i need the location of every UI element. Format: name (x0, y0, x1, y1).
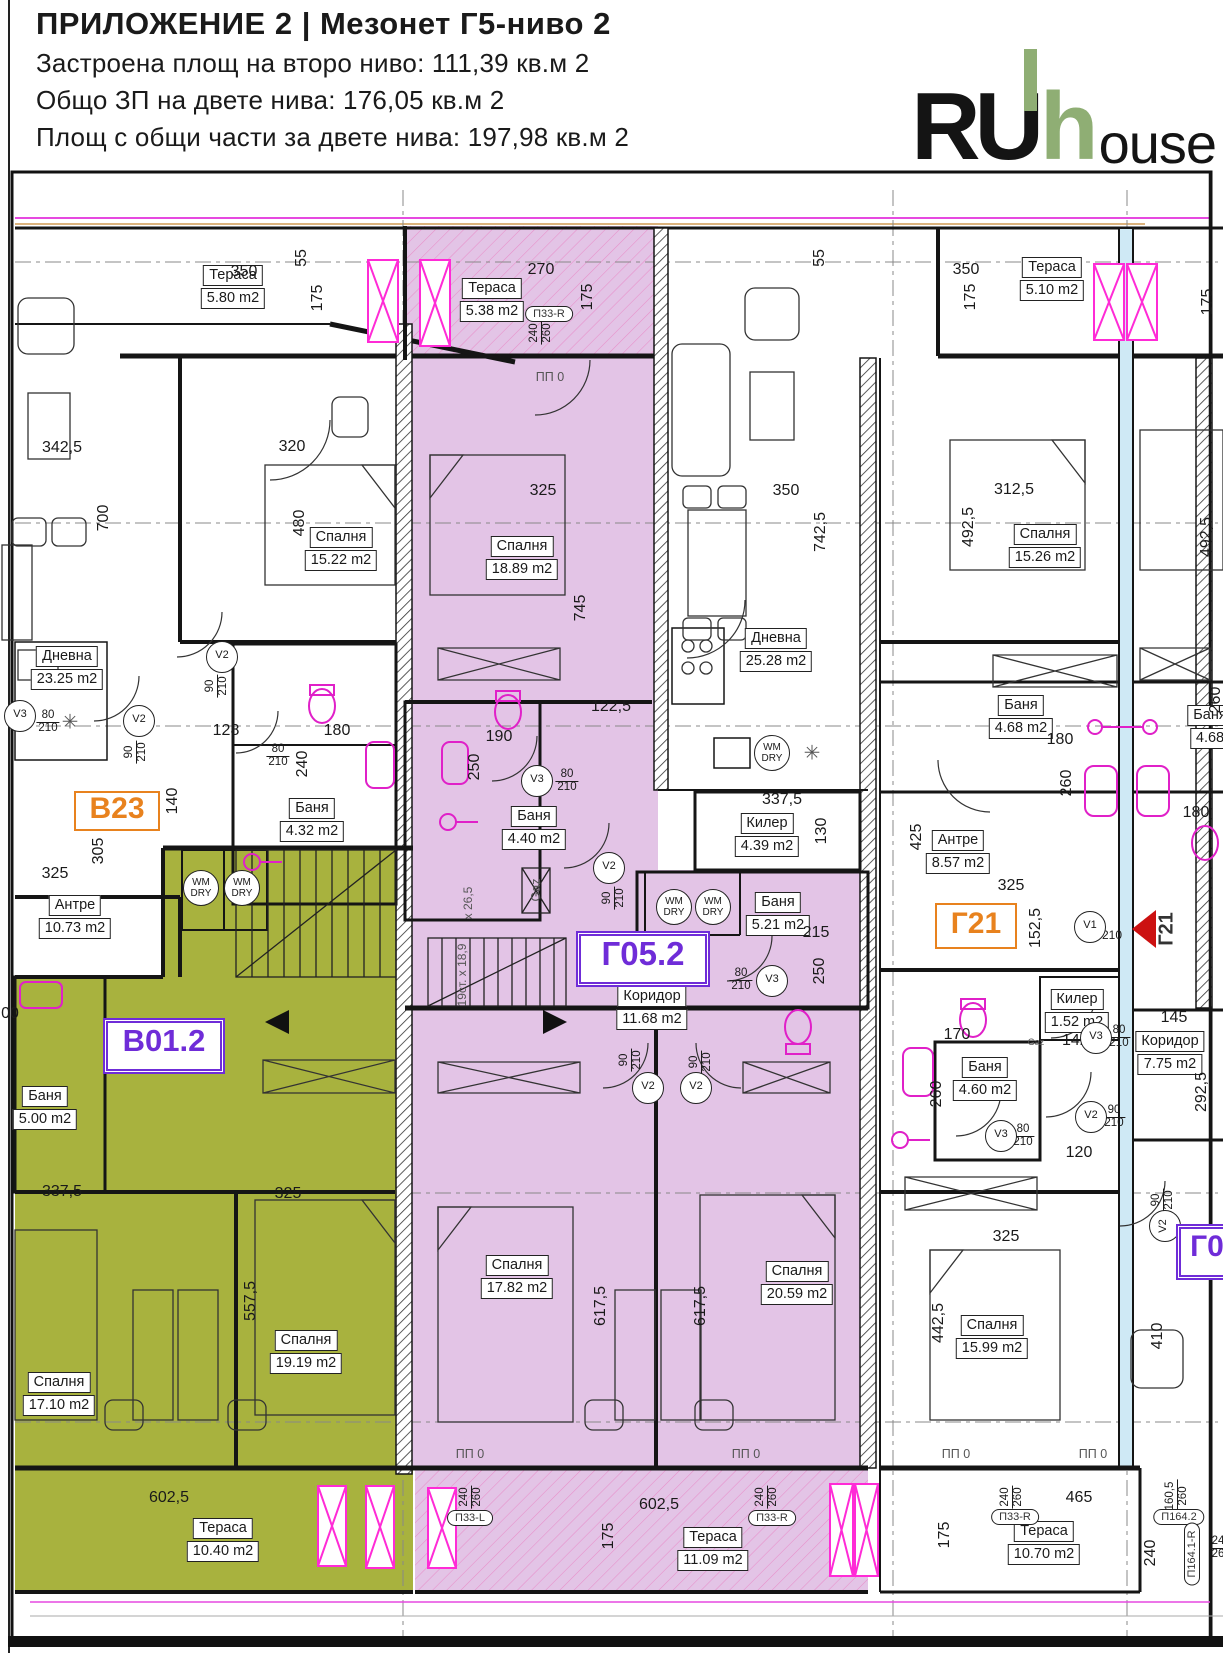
room-name: Тераса (1022, 257, 1082, 278)
note-text: ПП 0 (536, 370, 564, 384)
dimension-text: 240 (294, 751, 312, 778)
vent-circle: V1 (1074, 911, 1106, 943)
dimension-text: 320 (279, 438, 306, 456)
window-id-oval: П164.1-R (1184, 1522, 1200, 1585)
wm-dry-circle: WMDRY (656, 889, 692, 925)
wm-dry-circle: WMDRY (183, 870, 219, 906)
vent-circle: V2 (680, 1072, 712, 1104)
room-name: Спалня (28, 1372, 91, 1393)
apartment-tag: Г0 (1176, 1224, 1223, 1280)
room-name: Антре (932, 830, 984, 851)
window-size-tag: 240260 (529, 321, 553, 344)
room-name: Спалня (486, 1255, 549, 1276)
room-area: 10.70 m2 (1008, 1544, 1080, 1565)
room-name: Баня (22, 1086, 67, 1107)
dimension-text: 170 (944, 1026, 971, 1044)
dimension-text: 350 (231, 263, 258, 281)
door-size-tag: 80210 (729, 968, 752, 992)
room-area: 20.59 m2 (761, 1284, 833, 1305)
room-label: Килер4.39 m2 (735, 813, 799, 857)
dimension-text: 442,5 (930, 1303, 948, 1343)
room-label: Баня5.21 m2 (746, 892, 810, 936)
dimension-text: 305 (90, 838, 108, 865)
room-area: 25.28 m2 (740, 651, 812, 672)
dimension-text: 175 (600, 1523, 618, 1550)
dimension-text: 742,5 (812, 512, 830, 552)
room-label: Тераса5.38 m2 (460, 278, 524, 322)
note-text: Г21 (1156, 912, 1179, 946)
window-id-oval: П33-R (991, 1509, 1039, 1525)
dimension-text: 260 (928, 1081, 946, 1108)
room-label: Тераса10.40 m2 (187, 1518, 259, 1562)
dimension-text: 175 (1199, 289, 1217, 316)
dimension-text: 145 (1161, 1009, 1188, 1027)
dimension-text: 175 (936, 1522, 954, 1549)
room-label: Спалня19.19 m2 (270, 1330, 342, 1374)
note-text: ПП 0 (1079, 1447, 1107, 1461)
dimension-text: 700 (95, 505, 113, 532)
wm-dry-circle: WMDRY (695, 889, 731, 925)
room-name: Спалня (491, 536, 554, 557)
room-area: 4.68 m2 (989, 718, 1053, 739)
room-name: Баня (998, 695, 1043, 716)
room-label: Дневна23.25 m2 (31, 646, 103, 690)
note-text: ПП 0 (456, 1447, 484, 1461)
dimension-text: 602,5 (639, 1496, 679, 1514)
room-name: Коридор (1135, 1031, 1204, 1052)
window-id-oval: П164.2 (1153, 1509, 1204, 1525)
dimension-text: 55 (293, 249, 311, 267)
dimension-text: 175 (579, 284, 597, 311)
vent-circle: V3 (756, 965, 788, 997)
room-name: Тераса (193, 1518, 253, 1539)
room-area: 5.00 m2 (13, 1109, 77, 1130)
note-text: Gaz (529, 879, 543, 902)
dimension-text: 122,5 (591, 698, 631, 716)
room-label: Антре8.57 m2 (926, 830, 990, 874)
room-label: Спалня18.89 m2 (486, 536, 558, 580)
dimension-text: 180 (324, 722, 351, 740)
dimension-text: 55 (811, 249, 829, 267)
dimension-text: 250 (811, 958, 829, 985)
room-label: Спалня15.26 m2 (1009, 524, 1081, 568)
room-area: 15.26 m2 (1009, 547, 1081, 568)
room-area: 4.40 m2 (502, 829, 566, 850)
vent-circle: V3 (1080, 1022, 1112, 1054)
dimension-text: 350 (953, 261, 980, 279)
room-area: 18.89 m2 (486, 559, 558, 580)
dimension-text: 190 (486, 728, 513, 746)
dimension-text: 325 (530, 482, 557, 500)
room-name: Спалня (275, 1330, 338, 1351)
dimension-text: 492,5 (1198, 517, 1216, 557)
room-name: Тераса (462, 278, 522, 299)
dimension-text: 465 (1066, 1489, 1093, 1507)
dimension-text: 260 (1058, 770, 1076, 797)
vent-circle: V2 (206, 641, 238, 673)
vent-circle: V3 (985, 1120, 1017, 1152)
window-size-tag: 240260 (755, 1485, 779, 1508)
room-area: 5.80 m2 (201, 288, 265, 309)
window-id-oval: П33-L (447, 1510, 493, 1526)
vent-circle: V3 (4, 700, 36, 732)
wm-dry-circle: WMDRY (754, 735, 790, 771)
room-label: Баня4.32 m2 (280, 798, 344, 842)
room-area: 15.22 m2 (305, 550, 377, 571)
room-area: 4.32 m2 (280, 821, 344, 842)
room-label: Коридор11.68 m2 (616, 986, 687, 1030)
room-label: Спалня17.82 m2 (481, 1255, 553, 1299)
room-name: Спалня (961, 1315, 1024, 1336)
room-name: Антре (49, 895, 101, 916)
room-label: Тераса5.10 m2 (1020, 257, 1084, 301)
door-size-tag: 90210 (602, 886, 626, 909)
dimension-text: 325 (998, 877, 1025, 895)
door-size-tag: 90210 (1151, 1188, 1175, 1211)
room-area: 4.68 (1190, 728, 1223, 749)
room-area: 4.39 m2 (735, 836, 799, 857)
dimension-text: 240 (1142, 1540, 1160, 1567)
note-text: Gaz (1028, 1037, 1045, 1047)
apartment-tag: В01.2 (103, 1018, 225, 1074)
window-size-tag: 2426 (1210, 1536, 1223, 1560)
dimension-text: 480 (291, 510, 309, 537)
dimension-text: 120 (1066, 1144, 1093, 1162)
dimension-text: 312,5 (994, 481, 1034, 499)
door-size-tag: 90210 (619, 1048, 643, 1071)
room-label: Баня4.60 m2 (953, 1057, 1017, 1101)
room-area: 4.60 m2 (953, 1080, 1017, 1101)
dimension-text: 617,5 (692, 1286, 710, 1326)
room-area: 10.73 m2 (39, 918, 111, 939)
room-name: Спалня (310, 527, 373, 548)
dimension-text: 175 (309, 285, 327, 312)
window-id-oval: П33-R (748, 1510, 796, 1526)
dimension-text: 180 (1047, 731, 1074, 749)
window-size-tag: 240260 (459, 1485, 483, 1508)
dimension-text: 602,5 (149, 1489, 189, 1507)
room-label: Баня4.40 m2 (502, 806, 566, 850)
vent-circle: V2 (123, 705, 155, 737)
room-area: 17.82 m2 (481, 1278, 553, 1299)
dimension-text: 342,5 (42, 439, 82, 457)
apartment-tag: Г21 (935, 903, 1017, 949)
door-size-tag: 90210 (689, 1050, 713, 1073)
room-area: 5.10 m2 (1020, 280, 1084, 301)
dimension-text: 152,5 (1027, 908, 1045, 948)
room-label: Коридор7.75 m2 (1135, 1031, 1204, 1075)
room-name: Дневна (745, 628, 807, 649)
note-text: ПП 0 (942, 1447, 970, 1461)
dimension-text: 130 (813, 818, 831, 845)
dimension-text: 325 (275, 1185, 302, 1203)
room-area: 23.25 m2 (31, 669, 103, 690)
door-size-tag: 80210 (266, 744, 289, 768)
note-text: ✳ (62, 710, 79, 735)
room-label: Дневна25.28 m2 (740, 628, 812, 672)
dimension-text: 128 (213, 722, 240, 740)
room-name: Спалня (766, 1261, 829, 1282)
door-size-tag: 90210 (124, 740, 148, 763)
door-size-tag: 90210 (205, 674, 229, 697)
room-label: Антре10.73 m2 (39, 895, 111, 939)
vent-circle: V2 (593, 852, 625, 884)
room-label: Тераса10.70 m2 (1008, 1521, 1080, 1565)
dimension-text: 215 (803, 924, 830, 942)
dimension-text: 557,5 (242, 1281, 260, 1321)
dimension-text: 350 (773, 482, 800, 500)
door-size-tag: 80210 (555, 769, 578, 793)
dimension-text: 325 (993, 1228, 1020, 1246)
note-text: ПП 0 (732, 1447, 760, 1461)
room-name: Килер (740, 813, 793, 834)
dimension-text: 260 (1207, 687, 1223, 714)
room-label: Баня5.00 m2 (13, 1086, 77, 1130)
apartment-tag: В23 (74, 791, 160, 831)
note-text: x 26,5 (461, 887, 475, 920)
room-name: Баня (511, 806, 556, 827)
dimension-text: 140 (164, 788, 182, 815)
room-area: 10.40 m2 (187, 1541, 259, 1562)
room-area: 15.99 m2 (956, 1338, 1028, 1359)
dimension-text: 337,5 (42, 1183, 82, 1201)
dimension-text: 492,5 (960, 507, 978, 547)
dimension-text: 180 (1183, 804, 1210, 822)
vent-circle: V2 (632, 1072, 664, 1104)
room-label: Спалня15.99 m2 (956, 1315, 1028, 1359)
dimension-text: 617,5 (592, 1286, 610, 1326)
dimension-text: 00 (1, 1005, 19, 1023)
floor-plan-page: ПРИЛОЖЕНИЕ 2 | Мезонет Г5-ниво 2 Застрое… (0, 0, 1223, 1653)
room-name: Баня (962, 1057, 1007, 1078)
room-area: 19.19 m2 (270, 1353, 342, 1374)
dimension-text: 250 (466, 754, 484, 781)
room-area: 11.68 m2 (616, 1009, 687, 1030)
dimension-text: 175 (962, 284, 980, 311)
room-name: Дневна (36, 646, 98, 667)
note-text: ✳ (804, 741, 821, 766)
room-name: Спалня (1014, 524, 1077, 545)
dimension-text: 425 (908, 824, 926, 851)
dimension-text: 270 (528, 261, 555, 279)
window-size-tag: 160,5260 (1165, 1480, 1189, 1513)
room-name: Баня (289, 798, 334, 819)
dimension-text: 325 (42, 865, 69, 883)
room-area: 8.57 m2 (926, 853, 990, 874)
room-area: 5.38 m2 (460, 301, 524, 322)
room-label: Спалня15.22 m2 (305, 527, 377, 571)
apartment-tag: Г05.2 (576, 931, 710, 987)
room-name: Тераса (683, 1527, 743, 1548)
room-name: Баня (755, 892, 800, 913)
note-text: 19ст. x 18,9 (455, 944, 469, 1007)
room-label: Тераса11.09 m2 (677, 1527, 748, 1571)
dimension-text: 337,5 (762, 791, 802, 809)
dimension-text: 745 (572, 595, 590, 622)
window-size-tag: 240260 (1000, 1485, 1024, 1508)
room-area: 11.09 m2 (677, 1550, 748, 1571)
room-label: Спалня20.59 m2 (761, 1261, 833, 1305)
vent-circle: V2 (1075, 1101, 1107, 1133)
door-size-tag: 80210 (36, 710, 59, 734)
vent-circle: V3 (521, 765, 553, 797)
dimension-text: 410 (1149, 1323, 1167, 1350)
room-area: 5.21 m2 (746, 915, 810, 936)
room-area: 17.10 m2 (23, 1395, 95, 1416)
plan-labels: Тераса5.80 m2Тераса5.38 m2Тераса5.10 m2С… (0, 0, 1223, 1653)
room-label: Баня4.68 m2 (989, 695, 1053, 739)
dimension-text: 292,5 (1193, 1072, 1211, 1112)
window-id-oval: П33-R (525, 306, 573, 322)
room-label: Спалня17.10 m2 (23, 1372, 95, 1416)
room-name: Коридор (617, 986, 686, 1007)
room-name: Килер (1050, 989, 1103, 1010)
wm-dry-circle: WMDRY (224, 870, 260, 906)
